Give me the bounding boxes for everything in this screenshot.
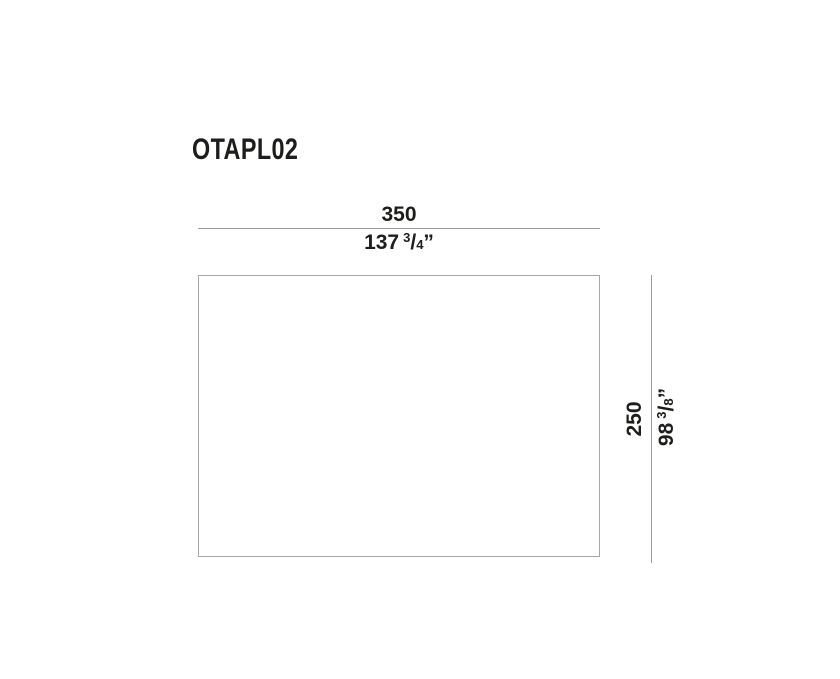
height-imperial-value: 983/8” — [656, 388, 680, 446]
height-imperial-numerator: 3 — [654, 411, 669, 418]
width-dimension-line — [198, 228, 600, 229]
dimension-spec-sheet: OTAPL02 350 1373/4” 250 983/8” — [0, 0, 840, 679]
width-metric-value: 350 — [198, 204, 600, 226]
height-metric-value: 250 — [624, 401, 646, 436]
height-imperial-denominator: 8 — [661, 398, 676, 405]
width-imperial-unit-mark: ” — [423, 231, 434, 254]
width-imperial-value: 1373/4” — [198, 231, 600, 257]
height-imperial-unit-mark: ” — [655, 388, 678, 399]
height-dimension-line — [651, 275, 652, 563]
product-outline — [198, 275, 600, 557]
width-imperial-numerator: 3 — [403, 230, 410, 245]
height-imperial-whole: 98 — [655, 423, 678, 446]
product-code-text: OTAPL02 — [192, 135, 298, 165]
product-code-label: OTAPL02 — [192, 135, 328, 165]
width-imperial-whole: 137 — [364, 231, 399, 254]
